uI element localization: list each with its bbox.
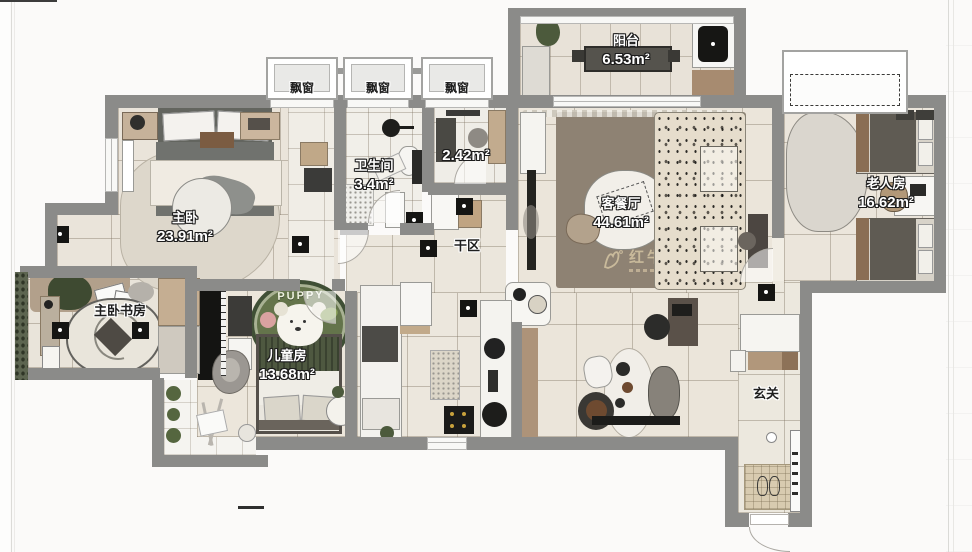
elder-door-opening (772, 238, 784, 281)
room-name: 老人房 (858, 176, 914, 193)
scale-dash-mark (238, 506, 264, 509)
wall-entry-bottom-right (788, 513, 812, 527)
wall-entry-left (725, 443, 738, 527)
dry-area-label: 干区 (454, 238, 480, 255)
cooktop-burner (450, 424, 454, 428)
cooktop (444, 406, 474, 434)
balcony-plants (166, 428, 181, 443)
entry-closet-wood-dark (782, 352, 798, 370)
balcony-wood-cabinet (692, 70, 734, 98)
wall-kids-right (345, 291, 357, 437)
room-name: 主卧 (157, 210, 213, 227)
appliance-handle (488, 370, 498, 392)
faucet-arm (398, 126, 414, 129)
room-name: 卫生间 (354, 158, 393, 175)
study-plant-strip (14, 272, 28, 380)
wall-bath-storage-divider (422, 108, 434, 192)
bed-tray (200, 132, 234, 148)
balcony-small-table (238, 424, 256, 442)
wall-living-west-bottom (512, 322, 522, 437)
fridge (400, 282, 432, 326)
living-dining-label: 客餐厅 44.61m² (593, 196, 649, 232)
dining-chair-gray (648, 366, 680, 420)
balcony-label: 阳台 6.53m² (602, 33, 650, 69)
bay-window-label-3: 飘窗 (445, 81, 469, 97)
room-name: 阳台 (602, 33, 650, 50)
room-area: 2.42m² (442, 146, 490, 166)
photo-edge-left-line (11, 0, 12, 552)
cooktop-burner (462, 424, 466, 428)
kids-pillow (263, 395, 301, 423)
wall-study-bottom (20, 368, 160, 380)
spotlight-icon (420, 240, 437, 257)
entry-door-leaf (750, 514, 789, 525)
bay-window-text: 飘窗 (445, 81, 469, 97)
door-stopper (766, 432, 777, 443)
wall-bed-bath-divider (334, 108, 346, 230)
room-area: 13.68m² (259, 365, 315, 385)
coffee-machine (484, 338, 505, 359)
kids-shelf (228, 296, 252, 336)
washer-dot (711, 42, 715, 46)
kitchen-cabinet-block (362, 398, 400, 430)
wall-kids-top-stub (332, 279, 345, 291)
cooktop-burner (462, 412, 466, 416)
bath-shelf (412, 150, 422, 184)
wall-storage-bottom (428, 183, 508, 195)
puppy-eye (303, 320, 306, 323)
dry-area-cabinet (431, 194, 459, 230)
cooktop-burner (450, 412, 454, 416)
elder-room-label: 老人房 16.62m² (858, 176, 914, 212)
tv-stand (523, 205, 539, 239)
wall-kids-top (185, 279, 300, 291)
elder-bed-1-wood (856, 112, 869, 172)
clothes-rail (446, 110, 480, 116)
wall-sbalcony-left (152, 378, 164, 467)
window-balcony-rail (520, 16, 734, 24)
photo-edge-left (0, 0, 10, 552)
kids-room-label: 儿童房 13.68m² (259, 348, 315, 384)
study-mini-cabinet (42, 346, 60, 370)
table-decor (622, 382, 633, 393)
table-lamp (130, 115, 145, 130)
spotlight-icon (52, 322, 69, 339)
puppy-nose (295, 327, 301, 331)
room-area: 3.4m² (354, 175, 393, 195)
master-closet-floor (288, 108, 334, 293)
room-name: 客餐厅 (593, 196, 649, 213)
entry-closet-wood (748, 352, 782, 370)
bay-window-label-1: 飘窗 (290, 81, 314, 97)
wall-balcony-top (508, 8, 746, 16)
spotlight-icon (758, 284, 775, 301)
floor-plan-canvas: 红牛装饰 (0, 0, 972, 552)
room-name: 主卧书房 (94, 303, 146, 320)
closet-dark-cabinet (304, 168, 332, 192)
master-study-label: 主卧书房 (94, 303, 146, 320)
rug-flower (260, 312, 276, 328)
wall-main-bottom-b (467, 437, 738, 450)
photo-edge-left-line (14, 0, 15, 552)
slipper (769, 476, 780, 496)
elder-wardrobe (916, 110, 934, 120)
photo-edge-right (946, 0, 972, 552)
elder-bed-2-pillow (918, 224, 933, 248)
bathroom-label: 卫生间 3.4m² (354, 158, 393, 194)
spotlight-icon (460, 300, 477, 317)
elder-bed-2-pillow (918, 250, 933, 274)
wall-entry-right (800, 281, 812, 527)
desk-computer (672, 304, 692, 316)
room-name: 干区 (454, 238, 480, 255)
wall-right-top (934, 95, 946, 293)
tv-screen (248, 118, 270, 130)
entry-door-swing (749, 527, 790, 552)
wall-elder-west (772, 108, 784, 238)
dining-bench (592, 416, 680, 425)
kids-footboard (259, 420, 339, 430)
shoe-cabinet-items (792, 445, 798, 495)
coffee-grinder (482, 402, 507, 427)
window-master-left (105, 138, 118, 192)
window-balcony-door (553, 96, 701, 107)
office-chair (644, 314, 670, 340)
kitchen-dark-block (362, 326, 398, 362)
elder-bed-2-blanket (870, 218, 916, 280)
radiator-panel (122, 140, 134, 192)
entry-label: 玄关 (753, 386, 779, 403)
room-area: 44.61m² (593, 213, 649, 233)
wall-elder-bottom (812, 281, 946, 293)
elder-bed-1-blanket (870, 112, 916, 172)
bench-handle (668, 50, 680, 62)
bay-window-tie (338, 68, 343, 74)
espresso-machine (513, 288, 526, 301)
master-bedroom-label: 主卧 23.91m² (157, 210, 213, 246)
wall-living-west-top (506, 108, 518, 230)
elder-bed-1-pillow (918, 142, 933, 166)
bench-handle (572, 50, 584, 62)
elder-bay-cushion (790, 74, 900, 106)
wall-sbalcony-bottom (152, 455, 268, 467)
room-name: 玄关 (753, 386, 779, 403)
wall-bath-bottom-b (400, 223, 434, 235)
room-area: 23.91m² (157, 227, 213, 247)
elder-bed-2-wood (856, 218, 869, 280)
kitchen-tall-cabinet (522, 328, 538, 437)
room-area: 16.62m² (858, 193, 914, 213)
bay-window-text: 飘窗 (366, 81, 390, 97)
closet-dresser (300, 142, 328, 166)
window-bottom-wall (427, 437, 467, 450)
kitchen-wood-shelf (400, 326, 430, 334)
wall-clock (528, 295, 547, 314)
entry-closet (740, 314, 800, 352)
balcony-plants (166, 386, 181, 401)
storage-desk (488, 110, 506, 164)
photo-artifact-top-line (0, 0, 57, 2)
storage-chair (468, 128, 488, 148)
slipper (757, 476, 768, 496)
sofa-cushion (700, 226, 738, 272)
table-decor (615, 398, 625, 408)
room-area: 6.53m² (602, 50, 650, 70)
spotlight-icon (292, 236, 309, 253)
entry-side-box (730, 350, 746, 372)
balcony-plants (167, 408, 180, 421)
wall-balcony-right (734, 8, 746, 108)
storage-room-label: 2.42m² (442, 146, 490, 166)
sofa-cushion (700, 146, 738, 192)
elder-bay-window (782, 50, 908, 114)
photo-edge-right-line (953, 0, 954, 552)
wall-balcony-left (508, 8, 520, 108)
bay-window-tie (413, 68, 421, 74)
puppy-eye (290, 320, 293, 323)
table-decor (616, 362, 630, 376)
living-west-cabinet (520, 112, 546, 174)
room-name: 儿童房 (259, 348, 315, 365)
spotlight-icon (132, 322, 149, 339)
bull-logo-icon (602, 247, 624, 271)
console-chair (738, 232, 756, 250)
wall-main-bottom-a (256, 437, 427, 450)
wall-left-step-v (45, 203, 57, 278)
bay-window-text: 飘窗 (290, 81, 314, 97)
photo-edge-right-line (948, 0, 949, 552)
balcony-cabinet (522, 46, 550, 96)
kids-plant-pot (332, 386, 344, 398)
piano-keys (221, 290, 226, 376)
puppy-ear (274, 302, 288, 316)
spotlight-icon (456, 198, 473, 215)
kitchen-mat (430, 350, 460, 400)
bay-window-label-2: 飘窗 (366, 81, 390, 97)
study-lamp (44, 300, 53, 309)
